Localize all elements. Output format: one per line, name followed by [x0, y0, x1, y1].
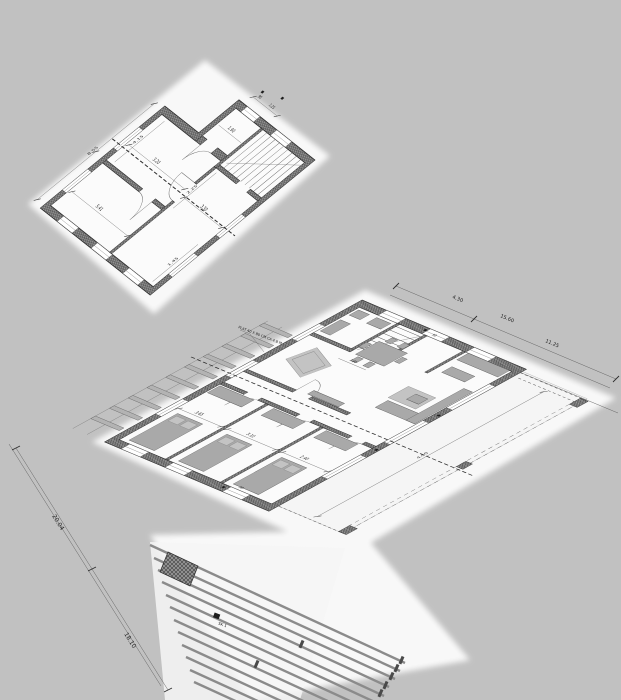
- floor-plans-scene: 3.20 4.15 3.30 2.25 5.41 1.45 1.90 90 1.…: [0, 0, 621, 700]
